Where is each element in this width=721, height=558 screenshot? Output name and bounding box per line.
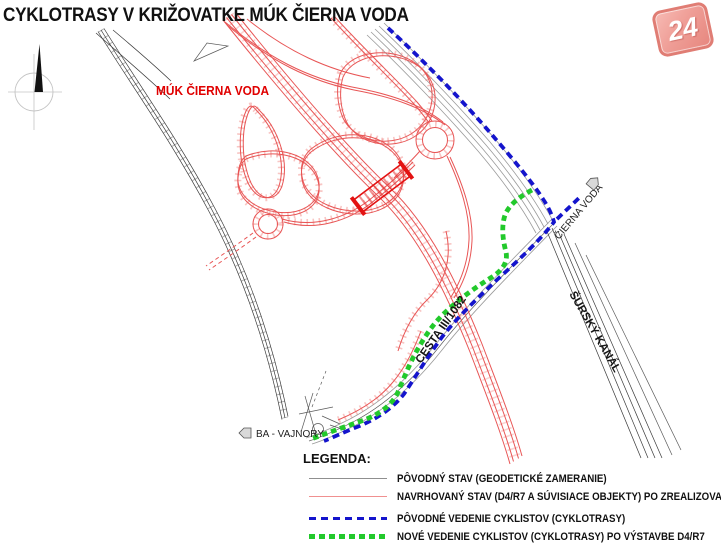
roundabout-north xyxy=(416,121,454,159)
legend-item-new-cycling-route: NOVÉ VEDENIE CYKLISTOV (CYKLOTRASY) PO V… xyxy=(303,529,721,544)
legend-line-gray xyxy=(309,478,387,479)
label-sursky-kanal: ŠURSKÝ KANÁL xyxy=(566,289,623,375)
legend-item-original-cycling-route: PÔVODNÉ VEDENIE CYKLISTOV (CYKLOTRASY) xyxy=(303,511,721,526)
logo-24-text: 24 xyxy=(665,13,700,46)
roundabout-south xyxy=(253,209,283,239)
proposed-roads xyxy=(206,12,522,464)
north-needle-icon xyxy=(35,44,44,92)
legend-item-original-state: PÔVODNÝ STAV (GEODETICKÉ ZAMERANIE) xyxy=(303,471,721,486)
legend-line-blue-dashed xyxy=(309,517,387,521)
compass-rose xyxy=(8,44,62,130)
legend: LEGENDA: PÔVODNÝ STAV (GEODETICKÉ ZAMERA… xyxy=(303,451,721,547)
sursky-canal-lines xyxy=(546,228,681,458)
label-muk-cierna-voda: MÚK ČIERNA VODA xyxy=(156,84,269,98)
route-original-blue xyxy=(324,28,579,441)
label-cierna-voda-direction: ČIERNA VODA xyxy=(551,181,605,242)
direction-arrow-vajnory-icon xyxy=(239,428,251,438)
plan-image: CESTA III/1082 ŠURSKÝ KANÁL ČIERNA VODA … xyxy=(0,0,721,558)
label-ba-vajnory: BA - VAJNORY xyxy=(256,429,324,440)
page-title: CYKLOTRASY V KRIŽOVATKE MÚK ČIERNA VODA xyxy=(3,4,409,27)
legend-item-proposed-state: NAVRHOVANÝ STAV (D4/R7 A SÚVISIACE OBJEK… xyxy=(303,489,721,504)
legend-line-red xyxy=(309,496,387,497)
legend-heading: LEGENDA: xyxy=(303,451,721,466)
legend-line-green-dotted xyxy=(309,534,387,539)
vajnory-junction-sketch xyxy=(299,371,345,438)
